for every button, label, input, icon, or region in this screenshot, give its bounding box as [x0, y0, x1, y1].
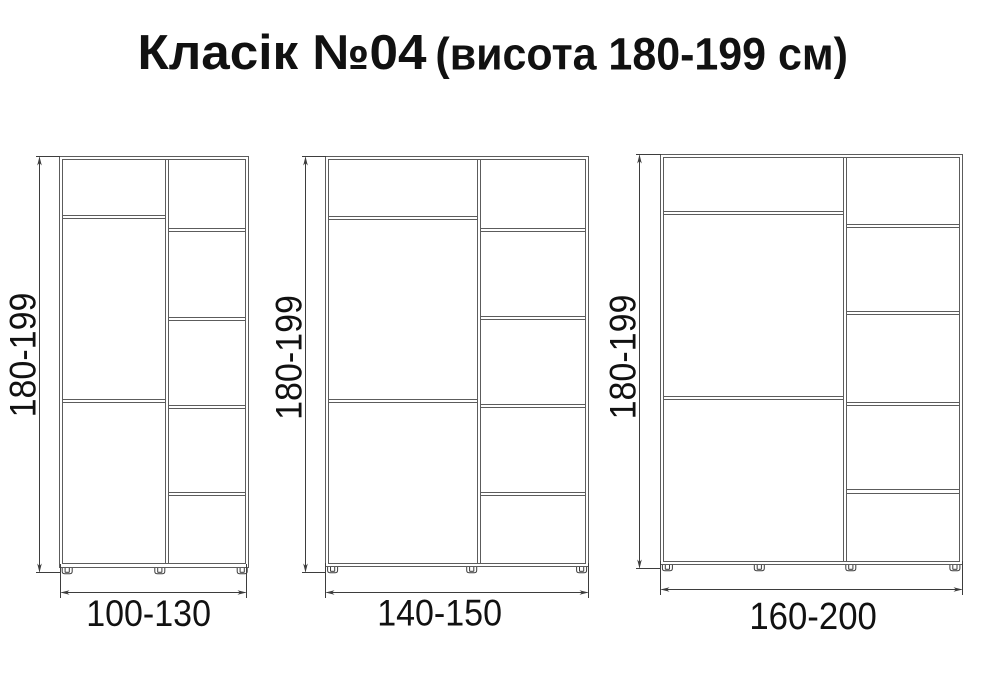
svg-text:180-199: 180-199 [602, 295, 643, 420]
svg-text:Класік №04: Класік №04 [138, 26, 427, 80]
svg-text:180-199: 180-199 [3, 293, 44, 418]
svg-text:180-199: 180-199 [268, 295, 309, 420]
svg-text:(висота 180-199 см): (висота 180-199 см) [435, 29, 848, 80]
svg-text:100-130: 100-130 [86, 593, 211, 634]
svg-text:140-150: 140-150 [377, 593, 502, 634]
svg-text:160-200: 160-200 [749, 595, 877, 638]
